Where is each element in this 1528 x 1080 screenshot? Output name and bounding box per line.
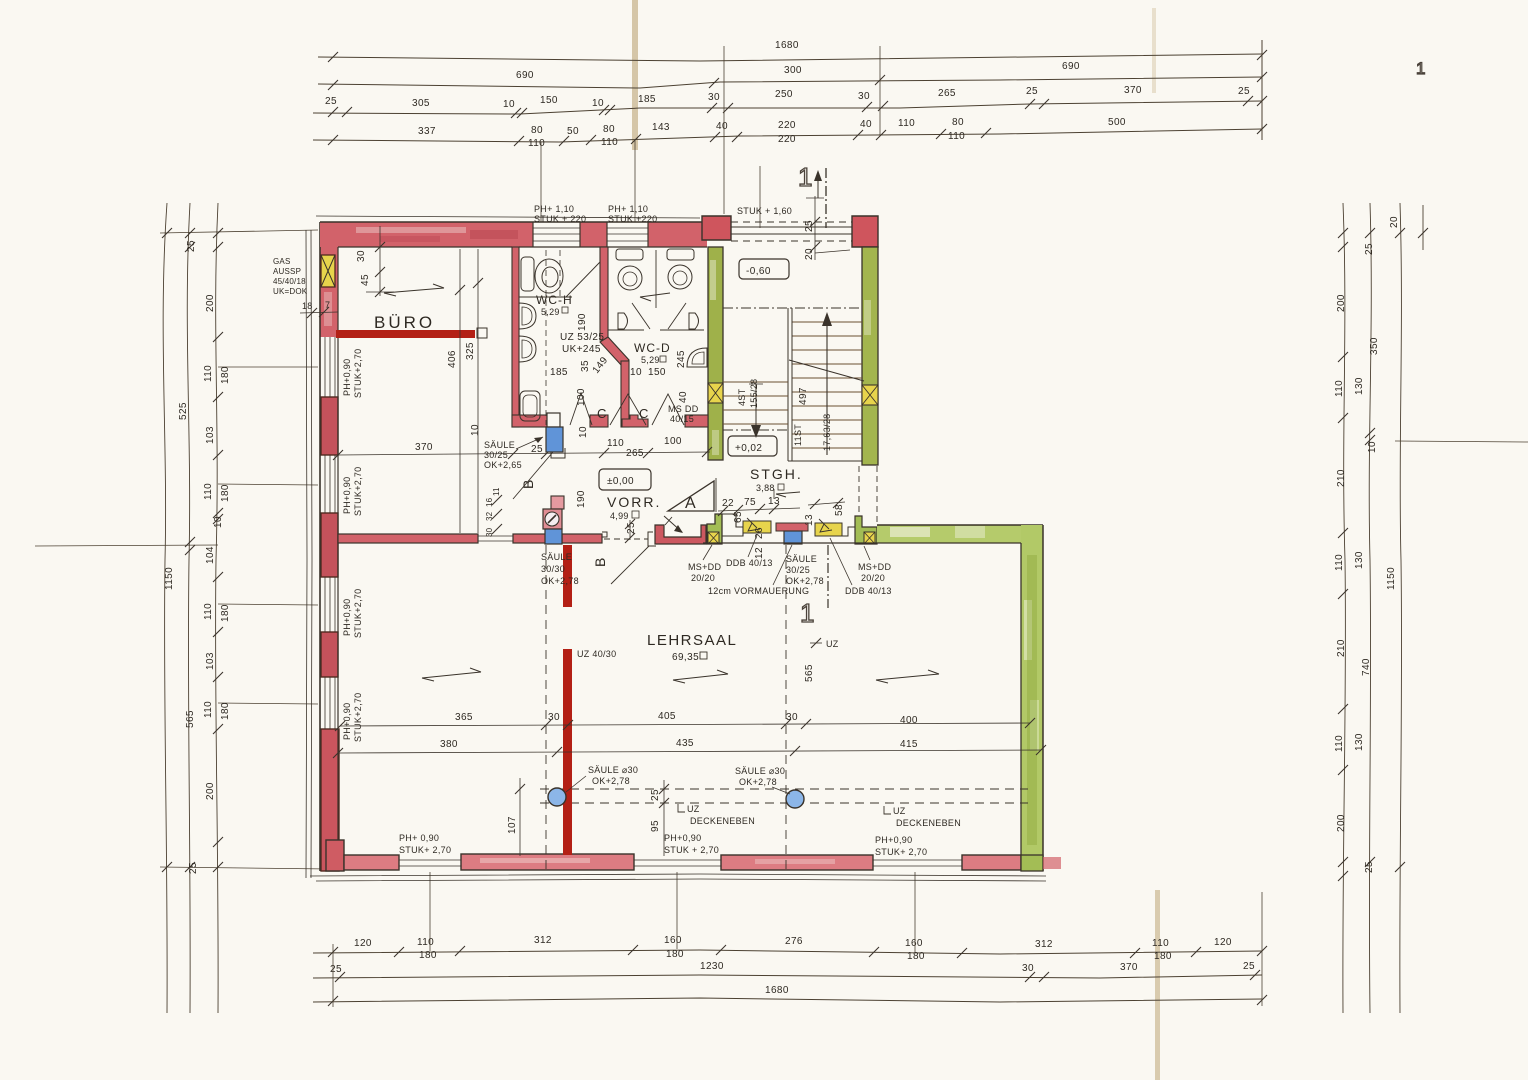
svg-text:45/40/18: 45/40/18 xyxy=(273,277,306,286)
svg-text:25: 25 xyxy=(626,522,637,534)
svg-text:UZ: UZ xyxy=(893,806,906,816)
svg-text:32: 32 xyxy=(485,511,494,521)
svg-text:525: 525 xyxy=(178,402,189,420)
svg-text:80: 80 xyxy=(952,117,964,128)
svg-text:DDB 40/13: DDB 40/13 xyxy=(845,586,892,596)
svg-text:80: 80 xyxy=(531,125,543,136)
svg-text:400: 400 xyxy=(900,715,918,726)
svg-text:337: 337 xyxy=(418,126,436,137)
svg-text:110: 110 xyxy=(607,438,624,449)
svg-text:30: 30 xyxy=(548,712,560,723)
svg-text:220: 220 xyxy=(778,120,796,131)
svg-text:25: 25 xyxy=(1238,86,1250,97)
svg-text:40: 40 xyxy=(716,121,728,132)
svg-text:4,99: 4,99 xyxy=(610,511,629,521)
svg-text:10: 10 xyxy=(1367,441,1378,453)
svg-text:565: 565 xyxy=(185,710,196,728)
svg-text:200: 200 xyxy=(205,294,216,312)
svg-text:VORR.: VORR. xyxy=(607,494,661,510)
svg-text:497: 497 xyxy=(798,387,809,405)
svg-text:20/20: 20/20 xyxy=(861,573,885,583)
svg-text:1: 1 xyxy=(798,162,812,192)
svg-text:30: 30 xyxy=(356,250,367,262)
svg-text:185: 185 xyxy=(638,94,656,105)
svg-text:40: 40 xyxy=(860,119,872,130)
svg-text:103: 103 xyxy=(205,652,216,670)
svg-text:13: 13 xyxy=(804,514,815,526)
svg-text:245: 245 xyxy=(676,350,687,368)
svg-text:120: 120 xyxy=(354,938,372,949)
svg-text:C: C xyxy=(639,406,648,421)
svg-text:17,63/28: 17,63/28 xyxy=(822,414,832,451)
svg-text:69,35: 69,35 xyxy=(672,652,699,663)
svg-text:PH+ 1,10: PH+ 1,10 xyxy=(534,204,574,214)
svg-text:40: 40 xyxy=(678,391,689,403)
svg-text:5,29: 5,29 xyxy=(641,355,660,365)
svg-text:265: 265 xyxy=(938,88,956,99)
svg-text:180: 180 xyxy=(220,702,231,720)
svg-text:11: 11 xyxy=(492,487,501,496)
svg-text:UK=DOK: UK=DOK xyxy=(273,287,308,296)
svg-text:OK+2,78: OK+2,78 xyxy=(592,776,630,786)
svg-text:150: 150 xyxy=(540,95,558,106)
svg-text:20: 20 xyxy=(1389,216,1400,228)
svg-text:180: 180 xyxy=(1154,951,1172,962)
svg-text:110: 110 xyxy=(203,603,214,620)
svg-text:MS+DD: MS+DD xyxy=(858,562,891,572)
svg-text:DDB 40/13: DDB 40/13 xyxy=(726,558,773,568)
svg-text:740: 740 xyxy=(1361,658,1372,676)
svg-text:130: 130 xyxy=(1354,733,1365,751)
svg-text:200: 200 xyxy=(1336,294,1347,312)
svg-text:DECKENEBEN: DECKENEBEN xyxy=(896,818,961,828)
svg-text:690: 690 xyxy=(1062,61,1080,72)
svg-text:25: 25 xyxy=(531,444,543,455)
svg-text:25: 25 xyxy=(1026,86,1038,97)
svg-text:25: 25 xyxy=(1364,861,1375,873)
svg-text:220: 220 xyxy=(778,134,796,145)
svg-text:110: 110 xyxy=(203,365,214,382)
svg-text:365: 365 xyxy=(455,712,473,723)
svg-text:±0,00: ±0,00 xyxy=(607,476,634,487)
svg-text:STUK + 1,60: STUK + 1,60 xyxy=(737,206,792,216)
svg-text:1230: 1230 xyxy=(700,961,724,972)
svg-text:1680: 1680 xyxy=(765,985,789,996)
svg-text:305: 305 xyxy=(412,98,430,109)
svg-text:110: 110 xyxy=(601,137,618,148)
svg-text:SÄULE ⌀30: SÄULE ⌀30 xyxy=(588,765,638,775)
svg-text:312: 312 xyxy=(534,935,552,946)
svg-text:25: 25 xyxy=(1243,961,1255,972)
svg-text:370: 370 xyxy=(1124,85,1142,96)
svg-text:PH+0,90: PH+0,90 xyxy=(342,359,352,396)
svg-text:OK+2,65: OK+2,65 xyxy=(484,460,522,470)
svg-text:406: 406 xyxy=(447,350,458,368)
svg-text:30: 30 xyxy=(708,92,720,103)
svg-text:10: 10 xyxy=(592,98,604,109)
svg-text:312: 312 xyxy=(1035,939,1053,950)
svg-text:25: 25 xyxy=(330,964,342,975)
svg-text:UK+245: UK+245 xyxy=(562,344,601,355)
svg-text:16: 16 xyxy=(485,497,494,507)
svg-text:A: A xyxy=(685,495,696,512)
svg-text:180: 180 xyxy=(419,950,437,961)
svg-text:435: 435 xyxy=(676,738,694,749)
svg-text:25: 25 xyxy=(1364,243,1375,255)
svg-text:BÜRO: BÜRO xyxy=(374,313,435,332)
svg-text:STUK+2,70: STUK+2,70 xyxy=(353,467,363,516)
svg-text:30/30: 30/30 xyxy=(541,564,565,574)
svg-text:25: 25 xyxy=(650,789,661,801)
svg-text:180: 180 xyxy=(666,949,684,960)
svg-text:B: B xyxy=(520,480,536,489)
svg-text:11ST: 11ST xyxy=(793,424,803,446)
svg-text:10: 10 xyxy=(578,426,589,438)
svg-text:22: 22 xyxy=(722,498,734,509)
svg-text:250: 250 xyxy=(775,89,793,100)
svg-text:STUK+2,70: STUK+2,70 xyxy=(353,349,363,398)
svg-text:110: 110 xyxy=(1152,938,1169,949)
svg-text:+0,02: +0,02 xyxy=(735,443,762,454)
svg-text:110: 110 xyxy=(203,483,214,500)
svg-text:380: 380 xyxy=(440,739,458,750)
svg-text:150: 150 xyxy=(648,367,666,378)
svg-text:PH+0,90: PH+0,90 xyxy=(875,835,912,845)
svg-text:370: 370 xyxy=(415,442,433,453)
svg-text:40/15: 40/15 xyxy=(670,414,694,424)
svg-text:110: 110 xyxy=(1334,735,1345,752)
svg-text:10: 10 xyxy=(630,367,642,378)
svg-text:3,88: 3,88 xyxy=(756,483,775,493)
svg-text:LEHRSAAL: LEHRSAAL xyxy=(647,632,737,649)
svg-text:UZ 40/30: UZ 40/30 xyxy=(577,649,616,659)
svg-text:STUK +220: STUK +220 xyxy=(608,214,657,224)
svg-text:190: 190 xyxy=(576,490,587,508)
svg-text:160: 160 xyxy=(664,935,682,946)
svg-text:25: 25 xyxy=(325,96,337,107)
svg-text:185: 185 xyxy=(550,367,568,378)
svg-text:STUK+2,70: STUK+2,70 xyxy=(353,589,363,638)
svg-text:35: 35 xyxy=(580,360,591,372)
svg-text:PH+ 1,10: PH+ 1,10 xyxy=(608,204,648,214)
svg-text:4ST: 4ST xyxy=(737,388,747,406)
svg-text:276: 276 xyxy=(785,936,803,947)
svg-text:107: 107 xyxy=(507,816,518,834)
svg-text:26: 26 xyxy=(754,527,765,539)
svg-text:30: 30 xyxy=(1022,963,1034,974)
svg-text:155/28: 155/28 xyxy=(749,379,759,408)
svg-text:SÄULE: SÄULE xyxy=(484,440,515,450)
svg-text:OK+2,78: OK+2,78 xyxy=(739,777,777,787)
svg-text:565: 565 xyxy=(804,664,815,682)
svg-text:130: 130 xyxy=(1354,551,1365,569)
svg-text:75: 75 xyxy=(744,497,756,508)
svg-text:180: 180 xyxy=(220,366,231,384)
svg-text:20: 20 xyxy=(804,248,815,260)
svg-text:AUSSP: AUSSP xyxy=(273,267,301,276)
svg-text:325: 325 xyxy=(465,342,476,360)
svg-text:30: 30 xyxy=(485,527,494,537)
svg-text:C: C xyxy=(597,406,606,421)
svg-text:30/25: 30/25 xyxy=(484,450,508,460)
svg-text:DECKENEBEN: DECKENEBEN xyxy=(690,816,755,826)
svg-text:180: 180 xyxy=(220,484,231,502)
svg-text:STUK+ 2,70: STUK+ 2,70 xyxy=(875,847,927,857)
svg-text:110: 110 xyxy=(898,118,915,129)
svg-text:210: 210 xyxy=(1336,639,1347,657)
svg-text:12cm VORMAUERUNG: 12cm VORMAUERUNG xyxy=(708,586,809,596)
svg-text:180: 180 xyxy=(220,604,231,622)
svg-text:110: 110 xyxy=(948,131,965,142)
svg-text:GAS: GAS xyxy=(273,257,291,266)
svg-text:25: 25 xyxy=(186,240,197,252)
svg-text:370: 370 xyxy=(1120,962,1138,973)
svg-text:1: 1 xyxy=(800,598,814,628)
svg-text:WC-D: WC-D xyxy=(634,341,671,355)
svg-text:-0,60: -0,60 xyxy=(746,266,771,277)
svg-text:10: 10 xyxy=(213,516,224,528)
svg-text:265: 265 xyxy=(626,448,644,459)
svg-text:B: B xyxy=(592,558,608,567)
svg-text:5,29: 5,29 xyxy=(541,307,560,317)
svg-text:45: 45 xyxy=(360,274,371,286)
svg-text:143: 143 xyxy=(652,122,670,133)
svg-text:STUK+ 2,70: STUK+ 2,70 xyxy=(399,845,451,855)
svg-text:160: 160 xyxy=(905,938,923,949)
svg-text:WC-H: WC-H xyxy=(536,293,573,307)
svg-text:210: 210 xyxy=(1336,469,1347,487)
svg-text:MS+DD: MS+DD xyxy=(688,562,721,572)
svg-text:10: 10 xyxy=(503,99,515,110)
svg-text:1680: 1680 xyxy=(775,40,799,51)
svg-text:PH+0,90: PH+0,90 xyxy=(664,833,701,843)
svg-text:18: 18 xyxy=(302,301,313,311)
svg-text:UZ: UZ xyxy=(826,639,839,649)
svg-text:500: 500 xyxy=(1108,117,1126,128)
svg-text:25: 25 xyxy=(188,862,199,874)
svg-text:UZ: UZ xyxy=(687,804,700,814)
svg-text:415: 415 xyxy=(900,739,918,750)
svg-text:110: 110 xyxy=(417,937,434,948)
svg-text:30: 30 xyxy=(786,712,798,723)
svg-text:SÄULE: SÄULE xyxy=(786,554,817,564)
svg-text:300: 300 xyxy=(784,65,802,76)
svg-text:190: 190 xyxy=(577,313,588,331)
svg-text:200: 200 xyxy=(1336,814,1347,832)
svg-text:130: 130 xyxy=(1354,377,1365,395)
svg-text:MS DD: MS DD xyxy=(668,404,699,414)
svg-text:110: 110 xyxy=(203,701,214,718)
svg-text:PH+0,90: PH+0,90 xyxy=(342,703,352,740)
svg-text:405: 405 xyxy=(658,711,676,722)
svg-text:110: 110 xyxy=(528,138,545,149)
svg-text:STUK+2,70: STUK+2,70 xyxy=(353,693,363,742)
svg-text:110: 110 xyxy=(1334,380,1345,397)
svg-text:OK+2,78: OK+2,78 xyxy=(541,576,579,586)
svg-text:PH+0,90: PH+0,90 xyxy=(342,477,352,514)
svg-text:PH+0,90: PH+0,90 xyxy=(342,599,352,636)
svg-text:1150: 1150 xyxy=(1386,567,1397,590)
svg-text:STUK + 220: STUK + 220 xyxy=(534,214,586,224)
svg-text:UZ 53/25: UZ 53/25 xyxy=(560,332,604,343)
svg-text:200: 200 xyxy=(205,782,216,800)
svg-text:180: 180 xyxy=(907,951,925,962)
svg-text:95: 95 xyxy=(650,820,661,832)
svg-text:SÄULE ⌀30: SÄULE ⌀30 xyxy=(735,766,785,776)
svg-text:OK+2,78: OK+2,78 xyxy=(786,576,824,586)
svg-text:110: 110 xyxy=(1334,554,1345,571)
svg-text:350: 350 xyxy=(1369,337,1380,355)
svg-text:103: 103 xyxy=(205,426,216,444)
svg-text:100: 100 xyxy=(576,388,587,406)
svg-text:1: 1 xyxy=(1416,59,1425,78)
svg-text:100: 100 xyxy=(664,436,682,447)
svg-text:120: 120 xyxy=(1214,937,1232,948)
svg-text:80: 80 xyxy=(603,124,615,135)
svg-text:25: 25 xyxy=(804,220,815,232)
svg-text:1150: 1150 xyxy=(164,567,175,590)
svg-text:30: 30 xyxy=(858,91,870,102)
svg-text:50: 50 xyxy=(567,126,579,137)
svg-text:104: 104 xyxy=(205,546,216,564)
svg-text:STGH.: STGH. xyxy=(750,466,803,482)
svg-text:STUK + 2,70: STUK + 2,70 xyxy=(664,845,719,855)
svg-text:30/25: 30/25 xyxy=(786,565,810,575)
svg-text:690: 690 xyxy=(516,70,534,81)
svg-text:SÄULE: SÄULE xyxy=(541,552,572,562)
svg-text:10: 10 xyxy=(470,424,481,436)
svg-text:PH+ 0,90: PH+ 0,90 xyxy=(399,833,439,843)
svg-text:20/20: 20/20 xyxy=(691,573,715,583)
